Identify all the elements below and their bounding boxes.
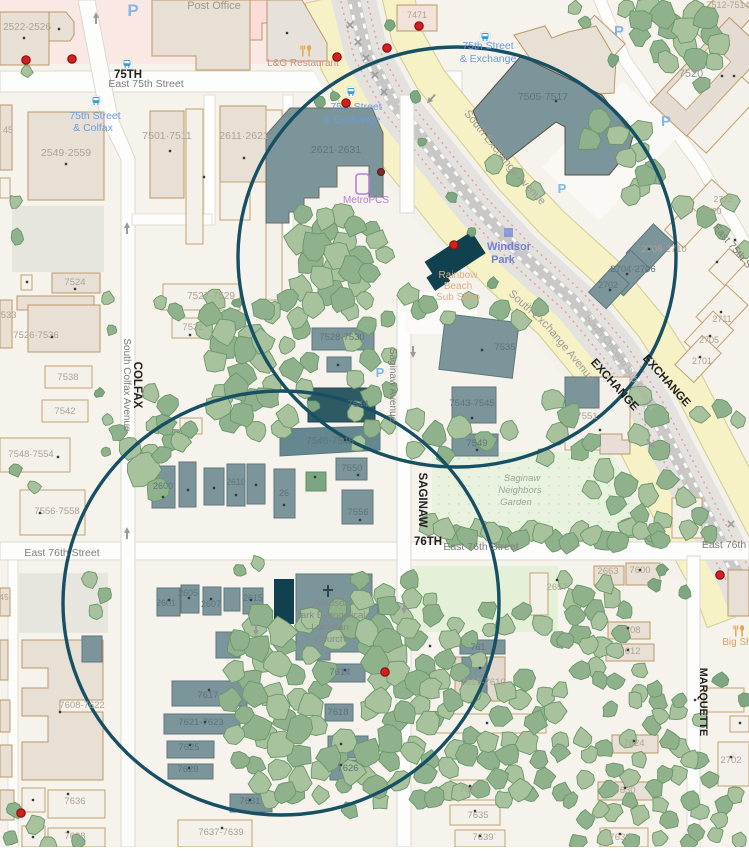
svg-text:2601: 2601: [156, 598, 176, 608]
svg-text:7635: 7635: [467, 810, 488, 821]
svg-text:P: P: [127, 1, 138, 20]
svg-text:2621·2631: 2621·2631: [311, 144, 361, 156]
svg-text:7608-7622: 7608-7622: [59, 700, 104, 711]
svg-text:7618: 7618: [327, 707, 348, 718]
svg-text:761: 761: [470, 642, 485, 652]
svg-text:2663: 2663: [597, 566, 618, 577]
svg-text:7527·7529: 7527·7529: [187, 291, 235, 302]
svg-text:2615: 2615: [243, 593, 263, 603]
svg-text:Beach: Beach: [444, 281, 472, 292]
svg-text:7621-7623: 7621-7623: [178, 717, 223, 728]
svg-text:Garden: Garden: [500, 497, 532, 508]
svg-text:7550: 7550: [341, 463, 362, 474]
svg-text:& Colfax: & Colfax: [73, 122, 113, 134]
svg-text:P: P: [558, 181, 567, 196]
svg-text:7630: 7630: [614, 785, 635, 796]
svg-text:P: P: [661, 113, 671, 130]
svg-text:South Colfax Avenue: South Colfax Avenue: [121, 338, 132, 432]
svg-text:Saginaw: Saginaw: [504, 473, 542, 484]
svg-text:7526·7536: 7526·7536: [13, 330, 58, 341]
svg-text:2611·2621: 2611·2621: [219, 130, 269, 142]
svg-text:26: 26: [279, 488, 289, 498]
svg-text:SAGINAW: SAGINAW: [416, 473, 428, 528]
svg-text:MARQUETTE: MARQUETTE: [697, 668, 709, 736]
svg-text:2701: 2701: [692, 356, 712, 366]
svg-text:East 76th Street: East 76th Street: [24, 547, 99, 559]
svg-text:Rainbow: Rainbow: [439, 270, 479, 281]
svg-text:2722: 2722: [714, 194, 733, 204]
svg-text:East 76th: East 76th: [702, 539, 747, 551]
svg-text:& Exchange: & Exchange: [460, 53, 517, 65]
svg-text:Saginaw Avenue: Saginaw Avenue: [387, 348, 398, 423]
svg-text:2702: 2702: [598, 280, 618, 290]
svg-text:7505·7517: 7505·7517: [518, 91, 568, 103]
svg-text:7543·7545: 7543·7545: [449, 398, 494, 409]
svg-text:L&G Restaurant: L&G Restaurant: [267, 58, 339, 69]
svg-text:7542: 7542: [54, 406, 75, 417]
svg-text:2610: 2610: [226, 477, 246, 487]
svg-text:7528·7530: 7528·7530: [319, 332, 364, 343]
svg-text:2522-2526: 2522-2526: [3, 22, 51, 33]
svg-text:7608: 7608: [619, 625, 640, 636]
svg-text:7471: 7471: [407, 10, 427, 20]
svg-text:7551: 7551: [576, 411, 597, 422]
svg-text:7556·7558: 7556·7558: [34, 506, 79, 517]
svg-text:45: 45: [3, 125, 13, 135]
svg-text:7639: 7639: [472, 832, 493, 843]
svg-text:Windsor: Windsor: [487, 241, 532, 253]
svg-text:45: 45: [0, 592, 9, 602]
svg-text:Big Sh: Big Sh: [722, 637, 749, 648]
svg-text:7624: 7624: [623, 738, 644, 749]
svg-text:76TH: 76TH: [414, 536, 442, 548]
svg-text:MetroPCS: MetroPCS: [343, 195, 389, 206]
svg-text:P: P: [614, 23, 624, 40]
svg-text:7614: 7614: [329, 667, 350, 678]
svg-text:& Exchange: & Exchange: [324, 114, 381, 126]
svg-text:2607: 2607: [201, 599, 221, 609]
svg-text:2549·2559: 2549·2559: [41, 147, 91, 159]
svg-text:7625: 7625: [178, 742, 199, 753]
svg-text:Church: Church: [315, 634, 346, 645]
svg-text:East 76th Street: East 76th Street: [443, 541, 518, 553]
svg-text:7556: 7556: [347, 507, 368, 518]
svg-text:2711: 2711: [712, 314, 731, 324]
svg-text:7531: 7531: [182, 322, 203, 333]
svg-text:Windsor: Windsor: [313, 598, 348, 609]
svg-text:Park Evangelical: Park Evangelical: [295, 610, 366, 621]
svg-text:7636: 7636: [64, 796, 85, 807]
svg-text:Sub Shop: Sub Shop: [436, 292, 480, 303]
svg-text:Post Office: Post Office: [187, 0, 241, 12]
svg-text:2704·2706: 2704·2706: [610, 264, 655, 275]
svg-text:2605: 2605: [178, 588, 198, 598]
svg-text:7501·7511: 7501·7511: [142, 130, 192, 142]
svg-text:7538: 7538: [57, 372, 78, 383]
svg-text:75TH: 75TH: [114, 69, 142, 81]
svg-text:7629: 7629: [177, 764, 198, 775]
svg-text:7546-7548: 7546-7548: [306, 436, 354, 447]
svg-text:75th Street: 75th Street: [330, 101, 381, 113]
svg-text:2720: 2720: [703, 206, 722, 216]
svg-text:7533: 7533: [0, 310, 17, 321]
svg-text:7617: 7617: [197, 690, 218, 701]
svg-text:7524: 7524: [64, 277, 85, 288]
svg-text:P: P: [376, 365, 385, 380]
svg-text:7520: 7520: [679, 68, 703, 80]
svg-text:7512-7514: 7512-7514: [706, 0, 749, 10]
svg-text:2600: 2600: [153, 481, 173, 491]
svg-text:2657: 2657: [546, 582, 567, 593]
svg-text:Lutheran: Lutheran: [311, 622, 349, 633]
svg-text:7631: 7631: [239, 796, 260, 807]
svg-text:COLFAX: COLFAX: [131, 362, 143, 409]
svg-text:7548·7554: 7548·7554: [8, 449, 53, 460]
svg-text:7544: 7544: [347, 399, 368, 410]
svg-text:7549: 7549: [466, 438, 487, 449]
svg-text:75th Street: 75th Street: [69, 110, 120, 122]
svg-text:7535: 7535: [494, 342, 515, 353]
svg-text:Park: Park: [491, 254, 516, 266]
svg-text:Neighbors: Neighbors: [498, 485, 542, 496]
svg-text:7612: 7612: [619, 646, 640, 657]
svg-text:7615·7619: 7615·7619: [460, 677, 505, 688]
